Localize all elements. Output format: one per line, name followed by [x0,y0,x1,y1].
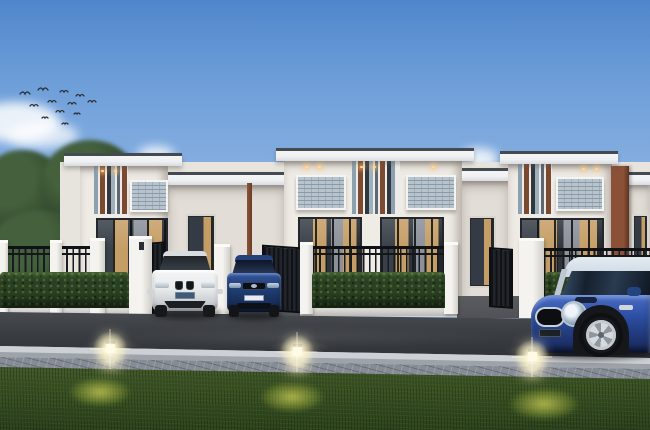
kidney-grille [175,281,183,290]
roof-fascia-high [500,151,618,164]
eave-downlight [101,170,104,172]
car-mirror [147,289,154,294]
car-wheel [269,305,279,317]
eave-downlight [595,168,598,170]
bumper-intake [164,301,206,308]
accent-stripe-panel [94,166,128,214]
kidney-grille [186,281,194,290]
car-badge [251,284,257,288]
car-grille [537,309,563,325]
roof-fascia-high [64,153,182,166]
lattice-window [556,177,604,211]
light-pool-on-grass [496,382,592,426]
hood-scoop [575,297,597,303]
license-plate [539,329,561,337]
navy-crossover-car [227,255,281,317]
car-wheel [229,305,239,317]
gate-keypad [139,242,144,250]
lattice-window [130,180,168,212]
lattice-window [406,175,456,210]
car-mirror [216,289,223,294]
bumper-intake [237,303,271,309]
car-mirror [627,287,641,296]
license-plate [175,292,195,299]
light-pool-on-grass [58,372,142,412]
townhouse-scene [0,0,650,430]
eave-downlight [582,168,585,170]
car-headlight [155,282,169,288]
lawn-bollard-light [293,344,302,366]
license-plate [244,295,264,301]
wheel-hub [598,332,604,338]
side-light [619,305,633,310]
hedge [312,272,445,308]
eave-downlight [432,166,435,168]
eave-downlight [114,170,117,172]
white-coupe-car [152,251,218,317]
car-headlight [267,283,279,288]
lawn-bollard-light [528,349,537,371]
eave-downlight [373,166,376,168]
eave-downlight [305,166,308,168]
light-pool-on-grass [248,376,336,418]
open-gate-panel [489,247,513,309]
roof-fascia-high [276,148,474,161]
fence-pillar [444,242,458,314]
lattice-window [296,175,346,210]
accent-stripe-panel [352,161,400,214]
roof-fascia-low [168,172,300,185]
car-wheel [203,305,215,317]
car-headlight [229,283,241,288]
lawn-bollard-light [106,341,115,363]
bird-flock [8,86,108,136]
accent-stripe-panel [518,164,552,214]
car-wheel [155,305,167,317]
eave-downlight [360,166,363,168]
car-headlight [201,282,215,288]
hedge [0,272,129,308]
eave-downlight [318,166,321,168]
